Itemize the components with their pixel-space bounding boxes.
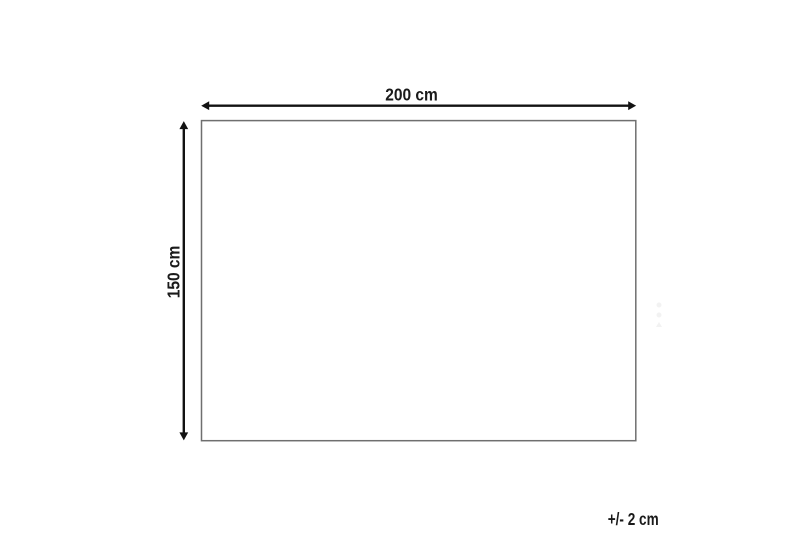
svg-text:200 cm: 200 cm (385, 85, 438, 105)
svg-text:150 cm: 150 cm (164, 246, 184, 299)
svg-text:+/- 2 cm: +/- 2 cm (608, 509, 659, 529)
